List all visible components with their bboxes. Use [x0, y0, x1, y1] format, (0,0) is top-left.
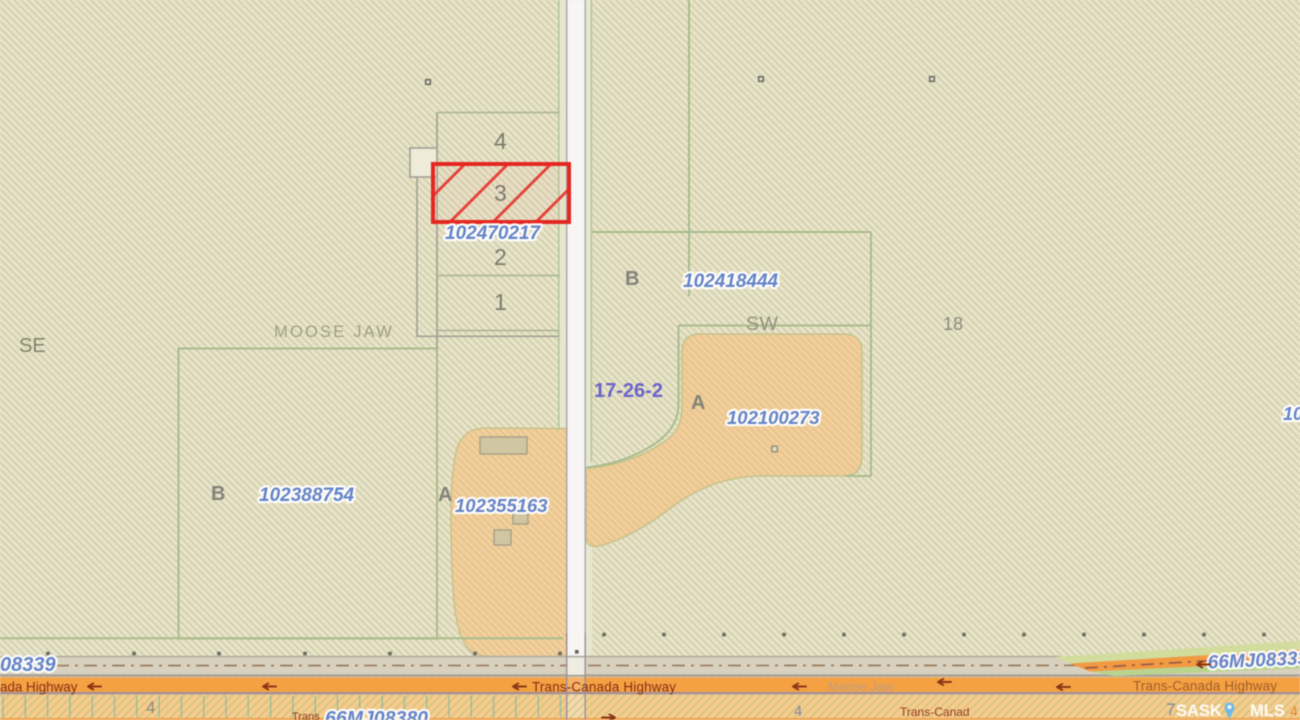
svg-text:1: 1	[494, 289, 507, 315]
svg-text:SW: SW	[746, 313, 779, 335]
svg-text:B: B	[211, 483, 225, 505]
svg-text:102388754: 102388754	[259, 485, 355, 506]
svg-text:SASK: SASK	[1176, 702, 1222, 720]
svg-text:A: A	[438, 484, 452, 506]
svg-text:66MJ08333: 66MJ08333	[1207, 648, 1300, 673]
svg-text:102355163: 102355163	[455, 495, 548, 516]
svg-text:4: 4	[494, 128, 507, 154]
svg-text:102418444: 102418444	[683, 271, 779, 292]
svg-text:66MJ08380: 66MJ08380	[325, 708, 428, 720]
svg-text:2: 2	[494, 244, 507, 270]
svg-text:A: A	[691, 392, 705, 414]
svg-text:4: 4	[146, 698, 155, 717]
svg-text:Trans: Trans	[292, 711, 320, 720]
svg-text:18: 18	[943, 314, 963, 334]
svg-text:4: 4	[1290, 703, 1298, 719]
svg-text:7: 7	[1166, 700, 1175, 719]
svg-text:Trans-Canada Highway: Trans-Canada Highway	[532, 680, 676, 695]
svg-text:08339: 08339	[0, 654, 56, 676]
svg-text:Trans-Canad: Trans-Canad	[900, 705, 970, 719]
svg-text:17-26-2: 17-26-2	[594, 380, 663, 402]
svg-text:SE: SE	[19, 335, 46, 357]
svg-text:MOOSE JAW: MOOSE JAW	[274, 323, 394, 341]
svg-text:4: 4	[794, 703, 802, 720]
svg-text:102470217: 102470217	[445, 223, 542, 244]
svg-text:MLS: MLS	[1250, 702, 1285, 720]
svg-text:B: B	[625, 268, 639, 290]
svg-text:102: 102	[1283, 404, 1300, 424]
svg-text:Moose Jaw: Moose Jaw	[828, 679, 894, 694]
svg-text:102100273: 102100273	[727, 407, 820, 428]
svg-text:ada Highway: ada Highway	[0, 680, 78, 695]
svg-text:3: 3	[494, 180, 507, 206]
svg-text:Trans-Canada Highway: Trans-Canada Highway	[1133, 679, 1277, 694]
